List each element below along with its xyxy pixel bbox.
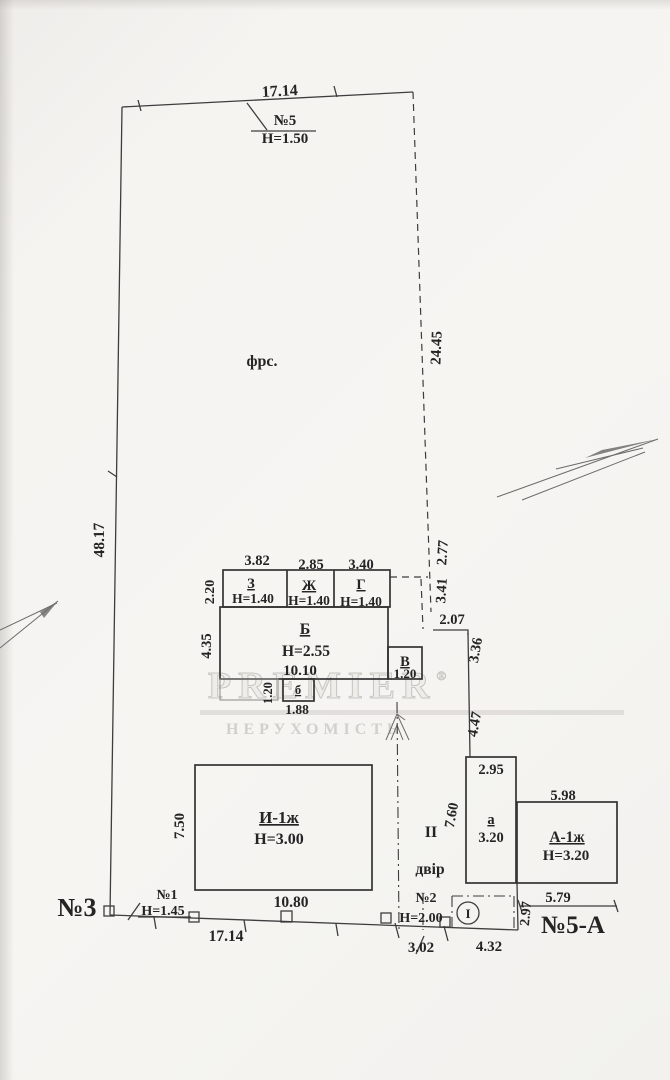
room-b-letter: Б xyxy=(300,621,311,638)
neighbor-top-number: №5 xyxy=(274,113,297,129)
house-i-height: Н=3.00 xyxy=(254,831,304,848)
scanned-plan-page: PREMIER® НЕРУХОМІСТЬ xyxy=(0,0,670,1080)
room-z-height: Н=1.40 xyxy=(232,591,274,606)
gate2-number: №2 xyxy=(415,891,436,906)
dim-room-b-side: 4.35 xyxy=(199,633,215,658)
room-b-height: Н=2.55 xyxy=(282,643,330,660)
room-zh-letter: Ж xyxy=(302,578,317,594)
dim-top-width: 17.14 xyxy=(261,82,298,101)
house-i-outline xyxy=(195,765,372,890)
dim-house-a-bottom: 5.79 xyxy=(545,890,570,906)
dim-house-a-side: 2.97 xyxy=(518,901,535,927)
room-z-letter: З xyxy=(247,576,255,592)
dim-room-b-width: 10.10 xyxy=(283,663,317,679)
dim-room-zh-width: 2.85 xyxy=(298,557,323,573)
yard-section-numeral: ІІ xyxy=(425,824,437,841)
dim-house-i-width: 10.80 xyxy=(274,894,309,911)
dim-house-i-side: 7.50 xyxy=(172,813,188,839)
house-i-label: И-1ж xyxy=(259,808,299,827)
dim-annex-b-width: 1.88 xyxy=(285,702,309,717)
annex-a-value: 3.20 xyxy=(478,830,503,846)
pen-arrow-right xyxy=(497,439,658,500)
dim-room-z-width: 3.82 xyxy=(244,553,269,569)
gate2-height: Н=2.00 xyxy=(399,911,442,926)
dim-annex-b-side: 1.20 xyxy=(261,682,275,704)
dim-right-length: 24.45 xyxy=(428,331,445,365)
label-frs: фрс. xyxy=(246,353,277,370)
house-a-height: Н=3.20 xyxy=(543,848,589,864)
dim-step-336: 3.36 xyxy=(466,636,486,664)
entry-numeral: І xyxy=(465,906,470,921)
gate1-height: Н=1.45 xyxy=(141,904,184,919)
dim-step-341: 3.41 xyxy=(433,578,451,604)
dim-step-277: 2.77 xyxy=(434,540,452,566)
dim-annex-a-width: 2.95 xyxy=(478,762,503,778)
dim-step-447: 4.47 xyxy=(465,710,485,738)
dim-432: 4.32 xyxy=(476,939,502,955)
neighbor-left-label: №3 xyxy=(57,893,96,922)
room-g-height: Н=1.40 xyxy=(340,594,382,609)
annex-b-letter: б xyxy=(295,683,301,697)
yard-label: двір xyxy=(415,861,444,878)
dim-frontage: 17.14 xyxy=(209,928,244,945)
dim-house-a-top: 5.98 xyxy=(550,788,575,804)
dim-row-side: 2.20 xyxy=(203,580,218,605)
gate1-number: №1 xyxy=(156,888,177,903)
dim-step-207: 2.07 xyxy=(439,612,464,628)
dim-302: 3.02 xyxy=(408,940,434,956)
pen-arrow-left xyxy=(0,601,58,648)
neighbor-right-label: №5-А xyxy=(541,912,605,939)
neighbor-top-height: Н=1.50 xyxy=(262,131,308,147)
room-zh-height: Н=1.40 xyxy=(288,593,330,608)
dim-left-length: 48.17 xyxy=(91,522,109,557)
site-plan-drawing: 17.14 №5 Н=1.50 48.17 фрс. 24.45 2.77 3.… xyxy=(0,0,670,1080)
dim-room-g-width: 3.40 xyxy=(348,557,373,573)
room-g-letter: Г xyxy=(356,577,365,593)
house-a-label: А-1ж xyxy=(549,829,585,846)
annex-a-letter: а xyxy=(487,812,495,828)
dim-room-v: 1.20 xyxy=(394,666,417,681)
dim-yard-side: 7.60 xyxy=(442,801,462,829)
